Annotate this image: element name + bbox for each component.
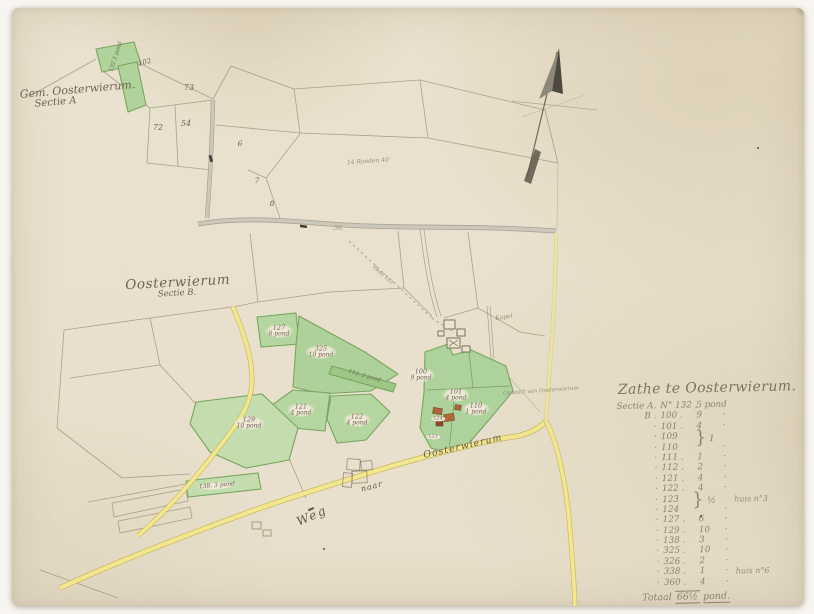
legend-cell: 6: [698, 514, 724, 525]
legend-cell: [697, 448, 723, 449]
green-parcels: [96, 42, 513, 497]
hamlet-outlines: [252, 459, 372, 536]
parcel-73-number: 73: [184, 84, 194, 92]
gray-road: [198, 100, 556, 231]
parcel-123-number: 123: [426, 434, 440, 439]
parcel-129-label: 129 10 pond: [233, 415, 266, 430]
parcel-124-number: 124: [431, 416, 445, 421]
legend-total-label: Totaal: [642, 592, 672, 604]
legend-cell: ·: [724, 514, 734, 525]
legend-cell: 10: [699, 545, 725, 556]
number-56-annotation: .56.: [332, 226, 343, 232]
legend-title: Zathe te Oosterwierum.: [612, 378, 810, 398]
paper-speck: [323, 548, 325, 550]
legend-brace-value: 1: [709, 434, 715, 444]
parcel-area: 9 pond: [411, 375, 432, 381]
parcel-8-number: 8: [270, 200, 275, 208]
compass-cross-line: [522, 95, 585, 117]
legend-cell: ·: [616, 578, 660, 589]
legend-cell: ·: [726, 576, 736, 587]
parcel-101-label: 101 4 pond: [442, 387, 471, 402]
parcel-area: 6 pond: [269, 331, 290, 337]
paper-speck: [757, 147, 759, 149]
legend-total-number: 66½: [675, 590, 701, 604]
scanned-cadastral-map: Gem. Oosterwierum. Sectie A Oosterwierum…: [0, 0, 814, 614]
legend-note-huis6: huis n°6: [736, 566, 770, 576]
parcel-122-label: 122 4 pond: [343, 412, 372, 427]
legend-cell: ·: [724, 472, 734, 483]
legend-cell: ·: [723, 462, 733, 473]
parcel-100-label: 100 9 pond: [407, 367, 436, 382]
parcel-area: 4 pond: [291, 410, 312, 416]
legend-cell: ·: [722, 410, 732, 421]
legend-cell: 4: [698, 473, 724, 484]
parcel-area: 4 pond: [347, 420, 368, 426]
legend-cell: ·: [725, 555, 735, 566]
legend-cell: ·: [726, 566, 736, 577]
parcel-area: 1 pond: [466, 409, 487, 415]
parcel-area: 4 pond: [446, 395, 467, 401]
legend-cell: 1: [697, 452, 723, 463]
legend-cell: ·: [725, 535, 735, 546]
legend: Zathe te Oosterwierum. Sectie A.N° 132 ,…: [612, 378, 814, 604]
legend-cell: 9: [696, 410, 722, 421]
parcel-7-number: 7: [255, 177, 260, 185]
parcel-110-label: 110 1 pond: [462, 401, 491, 416]
parcel-127-label: 127 6 pond: [265, 323, 294, 338]
legend-cell: ·: [723, 452, 733, 463]
legend-cell: 2: [697, 462, 723, 473]
legend-brace-109-110: }: [695, 427, 707, 448]
legend-cell: 10: [699, 524, 725, 535]
parcel-54-number: 54: [181, 120, 191, 128]
legend-rows: Sectie A.N° 132 ,5 pond B .100 .9· ·101 …: [612, 398, 814, 589]
legend-cell: 3: [699, 535, 725, 546]
legend-note-huis3: huis n°3: [734, 494, 768, 504]
compass-arrow: [512, 48, 597, 184]
legend-cell: 1: [700, 566, 726, 577]
legend-cell: [698, 511, 724, 512]
legend-cell: 360 .: [660, 577, 700, 588]
parcel-72-number: 72: [153, 124, 163, 132]
legend-cell: ·: [725, 524, 735, 535]
legend-brace-123-124: }: [692, 489, 704, 510]
parcel-121-label: 121 4 pond: [287, 402, 316, 417]
legend-cell: ·: [725, 545, 735, 556]
culvert-mark: [300, 225, 307, 229]
legend-total-unit: pond.: [703, 591, 730, 604]
legend-cell: ·: [723, 441, 733, 452]
legend-cell: ·: [723, 420, 733, 431]
legend-cell: ·: [724, 483, 734, 494]
parcel-area: 10 pond: [309, 352, 334, 358]
legend-brace-value: ½: [707, 496, 716, 506]
parcel-325-label: 325 10 pond: [305, 344, 338, 359]
legend-cell: 2: [699, 556, 725, 567]
parcel-6-number: 6: [238, 140, 243, 148]
legend-cell: 4: [700, 576, 726, 587]
paper-speck: [700, 515, 702, 517]
parcel-area: 10 pond: [237, 423, 262, 429]
legend-cell: ·: [724, 503, 734, 514]
legend-cell: 5 pond: [696, 400, 722, 411]
